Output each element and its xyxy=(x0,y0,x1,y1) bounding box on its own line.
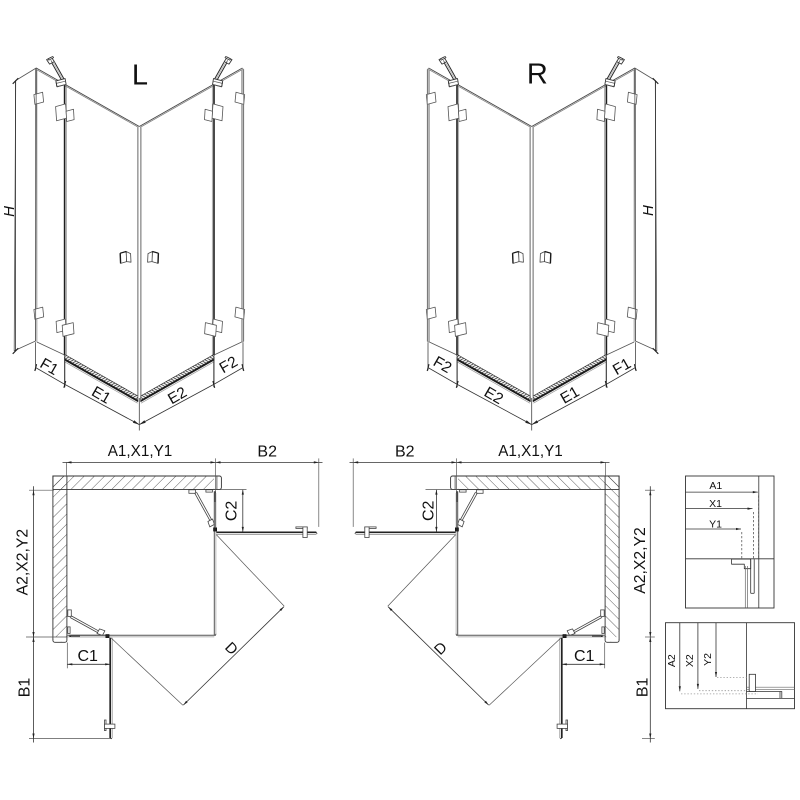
svg-text:C1: C1 xyxy=(574,648,595,665)
svg-text:X1: X1 xyxy=(709,498,722,510)
svg-text:Y2: Y2 xyxy=(702,653,714,666)
svg-text:H: H xyxy=(640,205,657,216)
svg-text:A1: A1 xyxy=(709,480,722,492)
svg-text:R: R xyxy=(527,59,548,91)
svg-text:Y1: Y1 xyxy=(709,518,722,530)
svg-text:C1: C1 xyxy=(77,648,98,665)
svg-text:H: H xyxy=(1,206,18,217)
svg-text:B2: B2 xyxy=(257,443,277,460)
svg-text:X2: X2 xyxy=(684,654,696,667)
svg-text:B2: B2 xyxy=(395,443,415,460)
svg-text:A1,X1,Y1: A1,X1,Y1 xyxy=(498,443,563,460)
svg-text:B1: B1 xyxy=(634,678,651,698)
svg-text:A1,X1,Y1: A1,X1,Y1 xyxy=(108,443,173,460)
svg-text:L: L xyxy=(132,59,148,91)
svg-text:C2: C2 xyxy=(420,500,437,521)
svg-text:C2: C2 xyxy=(224,501,241,522)
svg-text:B1: B1 xyxy=(17,678,34,698)
svg-text:A2,X2,Y2: A2,X2,Y2 xyxy=(632,527,649,594)
svg-text:A2: A2 xyxy=(666,654,678,667)
svg-text:A2,X2,Y2: A2,X2,Y2 xyxy=(14,529,31,596)
